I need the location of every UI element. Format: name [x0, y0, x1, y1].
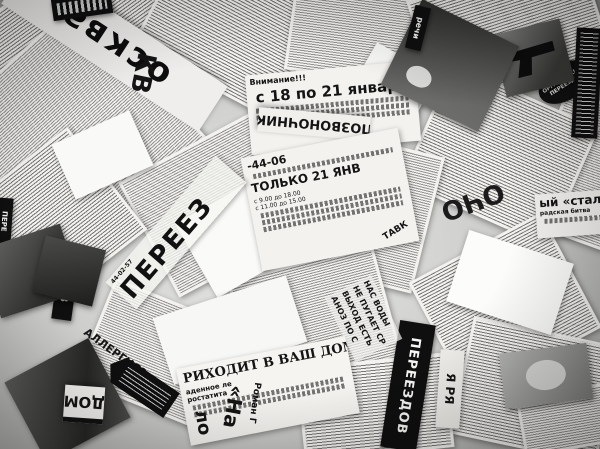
white-cup-shape — [403, 62, 435, 91]
reversed-text-lines — [56, 0, 107, 15]
rechi-text: речи — [411, 16, 425, 40]
lo-big-text: ло — [190, 408, 215, 437]
stal-headline-scrap: ый «стал радская битва — [535, 190, 600, 239]
jug-photo — [499, 343, 593, 409]
jug-highlight-shape — [524, 358, 567, 393]
pereezdov-text: ПЕРЕЕЗДОВ — [393, 337, 423, 436]
dom-flipped-scrap: ДОМ — [63, 385, 105, 425]
black-strip-banner — [571, 27, 600, 138]
newspaper-collage-photo: осква КВ Внимание!!! с 18 по 21 января П… — [0, 0, 600, 449]
reversed-text-lines — [575, 32, 598, 135]
pere-small-text: ПЕРЕ — [0, 210, 9, 231]
dom-text: ДОМ — [63, 392, 105, 413]
text-line — [544, 215, 600, 224]
ya-rya-text: Я РЯ — [442, 373, 458, 405]
